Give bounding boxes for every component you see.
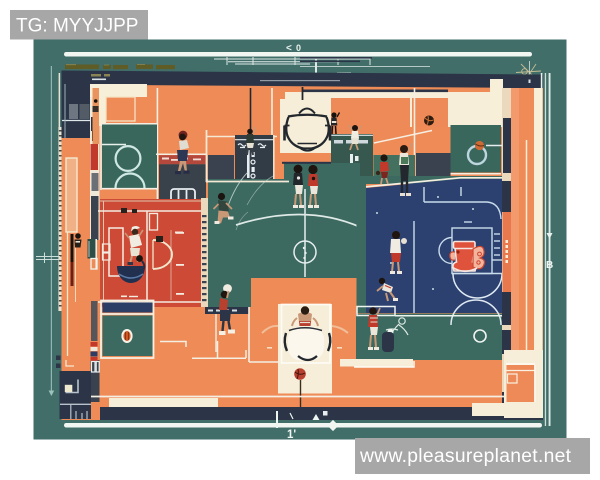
svg-text:B: B <box>546 260 553 271</box>
svg-text:0: 0 <box>296 43 301 53</box>
svg-text:TG: MYYJJPP: TG: MYYJJPP <box>16 16 138 37</box>
svg-text:<: < <box>286 43 292 54</box>
svg-text:1': 1' <box>287 429 296 441</box>
svg-text:www.pleasureplanet.net: www.pleasureplanet.net <box>359 446 572 467</box>
